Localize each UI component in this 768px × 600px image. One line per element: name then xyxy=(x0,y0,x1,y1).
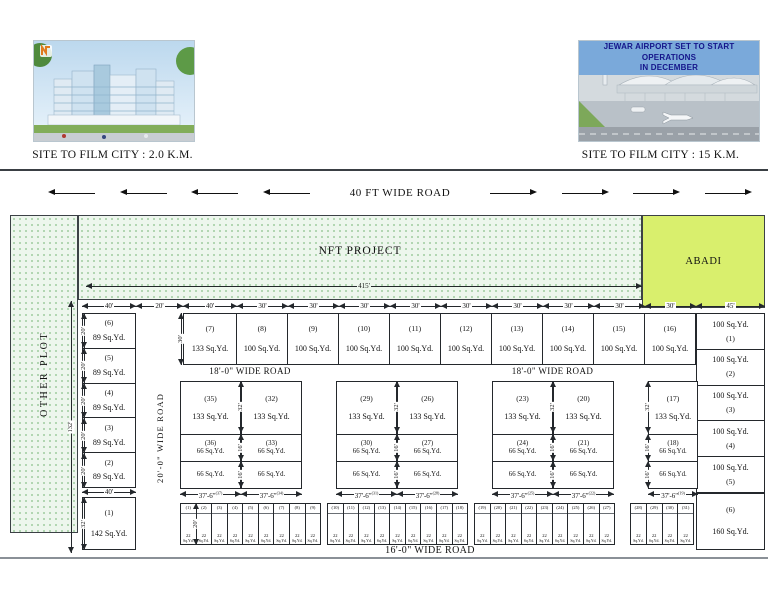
tiny-plot-area: 22Sq.Yd. xyxy=(214,533,225,543)
tiny-plot-number: (15) xyxy=(406,504,421,514)
plot-area: 89 Sq.Yd. xyxy=(93,438,125,447)
right-plot-column: 100 Sq.Yd.(1)100 Sq.Yd.(2)100 Sq.Yd.(3)1… xyxy=(696,313,765,493)
right-arrow-icon xyxy=(705,193,745,194)
dim-horizontal: 37'-6"(22) xyxy=(553,489,614,499)
tiny-plot-area: 22Sq.Yd. xyxy=(308,533,319,543)
plot-cell: (8)100 Sq.Yd. xyxy=(236,314,287,364)
tiny-area-unit: Sq.Yd. xyxy=(570,539,581,543)
tiny-plot: (20)22Sq.Yd. xyxy=(490,504,506,544)
dim-vertical: 32' xyxy=(643,381,653,433)
tiny-plot-area: 22Sq.Yd. xyxy=(330,533,341,543)
plot-number: (36) xyxy=(205,440,216,448)
dim-horizontal: 37'-6"(28) xyxy=(397,489,458,499)
plot-cell: (1)142 Sq.Yd. xyxy=(82,497,136,550)
plot-area: 100 Sq.Yd. xyxy=(712,427,748,436)
tiny-area-unit: Sq.Yd. xyxy=(423,539,434,543)
dim-text: 30' xyxy=(359,302,369,310)
tiny-plot-area: 22Sq.Yd. xyxy=(455,533,466,543)
dim-vertical: 30' xyxy=(176,313,186,365)
dim-text: 37'-6"(22) xyxy=(571,492,597,500)
dim-vertical: 32' xyxy=(548,381,558,433)
tiny-plot-area: 22Sq.Yd. xyxy=(602,533,613,543)
plot-number: (1) xyxy=(726,335,735,344)
dim-label: 30' xyxy=(543,301,594,311)
right-arrow-icon xyxy=(490,193,530,194)
tiny-plot: (10)22Sq.Yd. xyxy=(328,504,343,544)
dim-label: 37'-6"(19) xyxy=(648,489,698,501)
tiny-plot-area: 22Sq.Yd. xyxy=(292,533,303,543)
tiny-plot-number: (29) xyxy=(647,504,662,514)
plot-number: (23) xyxy=(516,395,529,404)
dim-label: 16' xyxy=(645,443,652,453)
film-city-card xyxy=(33,40,195,142)
plot-area: 66 Sq.Yd. xyxy=(509,448,536,456)
tiny-area-unit: Sq.Yd. xyxy=(346,539,357,543)
dim-vertical: 32' xyxy=(236,381,246,433)
plot-cell: (12)100 Sq.Yd. xyxy=(440,314,491,364)
dim-vertical: 20' xyxy=(79,418,89,453)
plot-number-superscript: (25) xyxy=(528,491,535,496)
plot-number: (2) xyxy=(726,370,735,379)
tiny-plot-number: (23) xyxy=(537,504,552,514)
tiny-area-unit: Sq.Yd. xyxy=(308,539,319,543)
plot-number: (13) xyxy=(511,325,524,334)
road-18ft-right-label: 18'-0" WIDE ROAD xyxy=(475,366,630,376)
tiny-area-unit: Sq.Yd. xyxy=(377,539,388,543)
tiny-area-unit: Sq.Yd. xyxy=(680,539,691,543)
tiny-area-unit: Sq.Yd. xyxy=(439,539,450,543)
dim-label: 16' xyxy=(550,443,557,453)
dim-label: 30' xyxy=(339,301,390,311)
tiny-plot-number: (18) xyxy=(453,504,468,514)
dim-horizontal: 30' xyxy=(441,301,492,311)
abadi-label: ABADI xyxy=(685,256,721,267)
plot-area: 160 Sq.Yd. xyxy=(712,527,748,536)
plot-number: (4) xyxy=(105,389,114,398)
block-column: (32)133 Sq.Yd.(33)66 Sq.Yd.66 Sq.Yd. xyxy=(241,381,302,489)
tiny-area-unit: Sq.Yd. xyxy=(392,539,403,543)
dim-label: 415' xyxy=(86,281,642,291)
dim-label: 20' xyxy=(81,361,88,371)
tiny-plot-area: 22Sq.Yd. xyxy=(245,533,256,543)
dim-label: 16' xyxy=(550,470,557,480)
dim-text: 40' xyxy=(104,302,114,310)
tiny-plot-number: (3) xyxy=(212,504,227,514)
tiny-plot-number: (20) xyxy=(491,504,506,514)
plot-cell: (17)133 Sq.Yd. xyxy=(649,382,697,434)
plot-number: (1) xyxy=(105,509,114,518)
tiny-plot: (28)22Sq.Yd. xyxy=(631,504,646,544)
tiny-plot: (7)22Sq.Yd. xyxy=(273,504,289,544)
plot-number: (10) xyxy=(358,325,371,334)
tiny-plot: (12)22Sq.Yd. xyxy=(358,504,374,544)
plot-cell: (3)89 Sq.Yd. xyxy=(83,417,135,452)
dim-label: 37'-6"(37) xyxy=(180,489,241,501)
tiny-area-unit: Sq.Yd. xyxy=(214,539,225,543)
dim-label: 30' xyxy=(237,301,288,311)
dim-label: 32' xyxy=(645,402,652,412)
dim-text: 30' xyxy=(614,302,624,310)
dim-vertical: 16' xyxy=(236,461,246,488)
tiny-plot-number: (8) xyxy=(290,504,305,514)
plot-number: (8) xyxy=(258,325,267,334)
tiny-area-unit: Sq.Yd. xyxy=(455,539,466,543)
plot-area: 133 Sq.Yd. xyxy=(348,412,384,421)
plot-area: 133 Sq.Yd. xyxy=(253,412,289,421)
plot-area: 66 Sq.Yd. xyxy=(659,471,686,479)
dim-label: 37'-6"(28) xyxy=(397,489,458,501)
tiny-plot-area: 22Sq.Yd. xyxy=(423,533,434,543)
plot-cell: 66 Sq.Yd. xyxy=(337,461,396,488)
dim-horizontal: 37'-6"(34) xyxy=(241,489,302,499)
tiny-area-unit: Sq.Yd. xyxy=(330,539,341,543)
tiny-plot-area: 22Sq.Yd. xyxy=(586,533,597,543)
plot-cell: 66 Sq.Yd. xyxy=(398,461,457,488)
dim-vertical: 16' xyxy=(548,434,558,461)
plot-cell: (33)66 Sq.Yd. xyxy=(242,434,301,461)
dim-label: 45' xyxy=(696,301,765,311)
tiny-plot-number: (30) xyxy=(663,504,678,514)
dim-label: 30' xyxy=(645,301,696,311)
plot-number: (4) xyxy=(726,442,735,451)
plot-number: (12) xyxy=(460,325,473,334)
plot-area: 100 Sq.Yd. xyxy=(499,344,535,353)
dim-horizontal: 20' xyxy=(136,301,183,311)
dim-label: 30' xyxy=(288,301,339,311)
tiny-plot-number: (27) xyxy=(600,504,615,514)
dim-label: 37'-6"(34) xyxy=(241,489,302,501)
dim-label: 20' xyxy=(81,396,88,406)
tiny-area-unit: Sq.Yd. xyxy=(230,539,241,543)
plot-number: (30) xyxy=(361,440,372,448)
dim-label: 30' xyxy=(178,334,185,344)
plot-area: 133 Sq.Yd. xyxy=(192,344,228,353)
dim-vertical: 16' xyxy=(236,434,246,461)
nft-project-label: NFT PROJECT xyxy=(319,245,402,257)
block-column: (20)133 Sq.Yd.(21)66 Sq.Yd.66 Sq.Yd. xyxy=(553,381,614,489)
plot-area: 66 Sq.Yd. xyxy=(258,471,285,479)
plot-number: (3) xyxy=(726,406,735,415)
plot-area: 66 Sq.Yd. xyxy=(258,448,285,456)
plot-cell: (5)89 Sq.Yd. xyxy=(83,348,135,383)
dim-label: 30' xyxy=(390,301,441,311)
plot-area: 89 Sq.Yd. xyxy=(93,333,125,342)
plot-number: (24) xyxy=(517,440,528,448)
tiny-plot: (24)22Sq.Yd. xyxy=(552,504,568,544)
plot-cell: (4)89 Sq.Yd. xyxy=(83,383,135,418)
plot-number: (33) xyxy=(266,440,277,448)
tiny-plot: (23)22Sq.Yd. xyxy=(536,504,552,544)
plot-cell: (7)133 Sq.Yd. xyxy=(184,314,236,364)
tiny-plot-area: 22Sq.Yd. xyxy=(539,533,550,543)
dim-label: 30' xyxy=(594,301,645,311)
plot-cell: 100 Sq.Yd.(4) xyxy=(697,420,764,456)
plot-cell: (11)100 Sq.Yd. xyxy=(389,314,440,364)
dim-vertical: 16' xyxy=(392,434,402,461)
dim-horizontal: 40' xyxy=(82,301,136,311)
left-arrow-icon xyxy=(55,193,95,194)
tiny-plot: (16)22Sq.Yd. xyxy=(420,504,436,544)
plot-number-superscript: (34) xyxy=(277,491,284,496)
plot-number: (32) xyxy=(265,395,278,404)
tiny-plot-number: (19) xyxy=(475,504,490,514)
dim-text: 20' xyxy=(154,302,164,310)
dim-horizontal: 37'-6"(31) xyxy=(336,489,397,499)
dim-vertical: 16' xyxy=(643,434,653,461)
tiny-plot-area: 22Sq.Yd. xyxy=(680,533,691,543)
airport-banner: JEWAR AIRPORT SET TO START OPERATIONS IN… xyxy=(579,41,759,75)
dim-label: 16' xyxy=(238,443,245,453)
dim-label: 20' xyxy=(81,431,88,441)
tiny-plot-area: 22Sq.Yd. xyxy=(346,533,357,543)
tiny-area-unit: Sq.Yd. xyxy=(539,539,550,543)
plot-cell: (35)133 Sq.Yd. xyxy=(181,382,240,434)
plot-area: 142 Sq.Yd. xyxy=(91,529,127,538)
tiny-plot-area: 22Sq.Yd. xyxy=(361,533,372,543)
dim-text: 30' xyxy=(512,302,522,310)
dim-vertical: 32' xyxy=(392,381,402,433)
plot-area: 100 Sq.Yd. xyxy=(346,344,382,353)
dim-label: 20' xyxy=(136,301,183,311)
dim-horizontal: 37'-6"(37) xyxy=(180,489,241,499)
dim-label: 40' xyxy=(82,487,136,497)
plot-area: 89 Sq.Yd. xyxy=(93,472,125,481)
plot-area: 66 Sq.Yd. xyxy=(353,448,380,456)
tiny-plot-number: (21) xyxy=(506,504,521,514)
plot-cell: (23)133 Sq.Yd. xyxy=(493,382,552,434)
tiny-plot-area: 22Sq.Yd. xyxy=(649,533,660,543)
tiny-plot: (26)22Sq.Yd. xyxy=(583,504,599,544)
tiny-plot: (14)22Sq.Yd. xyxy=(389,504,405,544)
tiny-plot-area: 22Sq.Yd. xyxy=(633,533,644,543)
dim-label: 16' xyxy=(394,443,401,453)
dim-text: 37'-6"(37) xyxy=(198,492,224,500)
plot-cell: 66 Sq.Yd. xyxy=(649,461,697,488)
dim-label: 37'-6"(25) xyxy=(492,489,553,501)
plot-number: (6) xyxy=(726,506,735,515)
tiny-plot-group: (19)22Sq.Yd.(20)22Sq.Yd.(21)22Sq.Yd.(22)… xyxy=(474,503,615,545)
site-plan-brochure-page: SITE TO FILM CITY : 2.0 K.M. JEWAR AIRPO… xyxy=(0,0,768,600)
tiny-plot-area: 22Sq.Yd. xyxy=(276,533,287,543)
plot-number: (26) xyxy=(421,395,434,404)
dim-horizontal: 30' xyxy=(543,301,594,311)
dim-text: 30' xyxy=(257,302,267,310)
dim-label: 16' xyxy=(394,470,401,480)
tiny-plot-group: (28)22Sq.Yd.(29)22Sq.Yd.(30)22Sq.Yd.(31)… xyxy=(630,503,694,545)
plot-area: 133 Sq.Yd. xyxy=(409,412,445,421)
dim-horizontal: 40' xyxy=(183,301,237,311)
plot-cell: (30)66 Sq.Yd. xyxy=(337,434,396,461)
block-column: (26)133 Sq.Yd.(27)66 Sq.Yd.66 Sq.Yd. xyxy=(397,381,458,489)
plot-area: 66 Sq.Yd. xyxy=(414,448,441,456)
plot-cell: (24)66 Sq.Yd. xyxy=(493,434,552,461)
dim-label: 16' xyxy=(238,470,245,480)
plot-area: 66 Sq.Yd. xyxy=(570,448,597,456)
tiny-plot-number: (16) xyxy=(421,504,436,514)
tiny-area-unit: Sq.Yd. xyxy=(524,539,535,543)
dim-text: 30' xyxy=(410,302,420,310)
tiny-area-unit: Sq.Yd. xyxy=(602,539,613,543)
plot-area: 100 Sq.Yd. xyxy=(652,344,688,353)
abadi-area: ABADI xyxy=(642,215,765,308)
plot-cell: (26)133 Sq.Yd. xyxy=(398,382,457,434)
tiny-plot-number: (13) xyxy=(375,504,390,514)
tiny-plot-number: (4) xyxy=(228,504,243,514)
plot-area: 89 Sq.Yd. xyxy=(93,368,125,377)
plot-area: 133 Sq.Yd. xyxy=(655,412,691,421)
tiny-plot: (27)22Sq.Yd. xyxy=(599,504,615,544)
plot-cell: 100 Sq.Yd.(3) xyxy=(697,385,764,421)
dim-text: 37'-6"(31) xyxy=(354,492,380,500)
tiny-plot-area: 22Sq.Yd. xyxy=(377,533,388,543)
dim-vertical: 20' xyxy=(79,313,89,348)
plot-area: 66 Sq.Yd. xyxy=(353,471,380,479)
tiny-plot-number: (7) xyxy=(274,504,289,514)
plot-number-superscript: (37) xyxy=(216,491,223,496)
plot-area: 100 Sq.Yd. xyxy=(712,391,748,400)
plot-area: 66 Sq.Yd. xyxy=(197,448,224,456)
plot-number: (16) xyxy=(664,325,677,334)
left-arrow-icon xyxy=(270,193,310,194)
tiny-area-unit: Sq.Yd. xyxy=(245,539,256,543)
dim-text: 40' xyxy=(104,488,114,496)
right-arrow-icon xyxy=(562,193,602,194)
site-plan-drawing: OTHER PLOT NFT PROJECT ABADI 18'-0" WIDE… xyxy=(0,215,768,565)
left-arrow-icon xyxy=(127,193,167,194)
plot-number: (20) xyxy=(577,395,590,404)
dim-label: 32' xyxy=(238,402,245,412)
tiny-area-unit: Sq.Yd. xyxy=(508,539,519,543)
plot-area: 100 Sq.Yd. xyxy=(712,355,748,364)
dim-vertical: 20' xyxy=(79,383,89,418)
plot-area: 133 Sq.Yd. xyxy=(192,412,228,421)
tiny-plot-number: (11) xyxy=(344,504,359,514)
tiny-plot: (3)22Sq.Yd. xyxy=(211,504,227,544)
tiny-plot: (25)22Sq.Yd. xyxy=(567,504,583,544)
tiny-plot-number: (17) xyxy=(437,504,452,514)
plot-cell: (15)100 Sq.Yd. xyxy=(593,314,644,364)
dim-horizontal: 40' xyxy=(82,487,136,497)
plot-number: (14) xyxy=(562,325,575,334)
plot-cell: (21)66 Sq.Yd. xyxy=(554,434,613,461)
plot-cell: (9)100 Sq.Yd. xyxy=(287,314,338,364)
plot-area: 89 Sq.Yd. xyxy=(93,403,125,412)
other-plot-label: OTHER PLOT xyxy=(39,331,50,417)
plot-cell: (6)89 Sq.Yd. xyxy=(83,314,135,348)
dim-vertical: 20' xyxy=(79,348,89,383)
tiny-plot: (4)22Sq.Yd. xyxy=(227,504,243,544)
dim-text: 30' xyxy=(308,302,318,310)
tiny-plot-number: (31) xyxy=(678,504,693,514)
plot-cell: 66 Sq.Yd. xyxy=(242,461,301,488)
plot-number: (11) xyxy=(409,325,421,334)
tiny-area-unit: Sq.Yd. xyxy=(292,539,303,543)
tiny-plot-area: 22Sq.Yd. xyxy=(493,533,504,543)
dim-label: 132' xyxy=(68,421,75,434)
tiny-plot-area: 22Sq.Yd. xyxy=(570,533,581,543)
road-16ft-label: 16'-0" WIDE ROAD xyxy=(320,545,540,556)
plot-number: (7) xyxy=(206,325,215,334)
plot-cell: (29)133 Sq.Yd. xyxy=(337,382,396,434)
tiny-plot: (6)22Sq.Yd. xyxy=(258,504,274,544)
plot-cell: (16)100 Sq.Yd. xyxy=(644,314,695,364)
plot-number: (35) xyxy=(204,395,217,404)
block-column: (29)133 Sq.Yd.(30)66 Sq.Yd.66 Sq.Yd. xyxy=(336,381,397,489)
dim-text: 30' xyxy=(461,302,471,310)
plot-number: (5) xyxy=(105,354,114,363)
tiny-plot-group: (10)22Sq.Yd.(11)22Sq.Yd.(12)22Sq.Yd.(13)… xyxy=(327,503,468,545)
top-plot-row: (7)133 Sq.Yd.(8)100 Sq.Yd.(9)100 Sq.Yd.(… xyxy=(183,313,696,365)
dim-horizontal: 30' xyxy=(390,301,441,311)
dim-vertical: 20' xyxy=(191,503,201,545)
dim-vertical: 16' xyxy=(548,461,558,488)
plot-number: (6) xyxy=(105,319,114,328)
plot-area: 66 Sq.Yd. xyxy=(570,471,597,479)
tiny-area-unit: Sq.Yd. xyxy=(665,539,676,543)
tiny-plot: (29)22Sq.Yd. xyxy=(646,504,662,544)
tiny-area-unit: Sq.Yd. xyxy=(586,539,597,543)
tiny-plot: (13)22Sq.Yd. xyxy=(374,504,390,544)
tiny-plot-number: (10) xyxy=(328,504,343,514)
tiny-plot: (30)22Sq.Yd. xyxy=(662,504,678,544)
dim-vertical: 132' xyxy=(66,301,76,553)
plot-cell: (20)133 Sq.Yd. xyxy=(554,382,613,434)
dim-text: 37'-6"(28) xyxy=(415,492,441,500)
tiny-plot: (8)22Sq.Yd. xyxy=(289,504,305,544)
tiny-plot-group: (1)22Sq.Yd.(2)22Sq.Yd.(3)22Sq.Yd.(4)22Sq… xyxy=(180,503,321,545)
tiny-plot: (22)22Sq.Yd. xyxy=(521,504,537,544)
tiny-plot-area: 22Sq.Yd. xyxy=(555,533,566,543)
tiny-plot: (17)22Sq.Yd. xyxy=(436,504,452,544)
tiny-plot: (9)22Sq.Yd. xyxy=(305,504,321,544)
tiny-plot: (31)22Sq.Yd. xyxy=(677,504,693,544)
plot-number: (15) xyxy=(613,325,626,334)
plot-cell: 100 Sq.Yd.(2) xyxy=(697,349,764,385)
dim-text: 30' xyxy=(665,302,675,310)
plot-number: (5) xyxy=(726,478,735,487)
dim-horizontal: 415' xyxy=(86,281,642,291)
dim-label: 37'-6"(22) xyxy=(553,489,614,501)
airport-banner-line1: JEWAR AIRPORT SET TO START OPERATIONS xyxy=(579,42,759,64)
plot-cell: 66 Sq.Yd. xyxy=(493,461,552,488)
tiny-plot-area: 22Sq.Yd. xyxy=(230,533,241,543)
airport-caption: SITE TO FILM CITY : 15 K.M. xyxy=(553,149,768,161)
plot-number: (2) xyxy=(105,459,114,468)
plot-area: 100 Sq.Yd. xyxy=(550,344,586,353)
dim-horizontal: 30' xyxy=(339,301,390,311)
tiny-area-unit: Sq.Yd. xyxy=(649,539,660,543)
plot-cell: (18)66 Sq.Yd. xyxy=(649,434,697,461)
right-arrow-icon xyxy=(633,193,673,194)
dim-label: 37'-6"(31) xyxy=(336,489,397,501)
tiny-plot-number: (28) xyxy=(631,504,646,514)
dim-vertical: 32' xyxy=(79,497,89,550)
dim-label: 20' xyxy=(193,519,200,529)
top-road-label: 40 FT WIDE ROAD xyxy=(342,187,459,199)
dim-label: 32' xyxy=(394,402,401,412)
dim-vertical: 16' xyxy=(643,461,653,488)
plot-cell: (36)66 Sq.Yd. xyxy=(181,434,240,461)
plot-cell: (14)100 Sq.Yd. xyxy=(542,314,593,364)
tiny-plot: (11)22Sq.Yd. xyxy=(343,504,359,544)
tiny-plot-number: (25) xyxy=(568,504,583,514)
plot-number: (3) xyxy=(105,424,114,433)
plot-area: 100 Sq.Yd. xyxy=(397,344,433,353)
plot-cell: (32)133 Sq.Yd. xyxy=(242,382,301,434)
plot-area: 100 Sq.Yd. xyxy=(448,344,484,353)
tiny-plot-number: (9) xyxy=(306,504,321,514)
plot-area: 133 Sq.Yd. xyxy=(504,412,540,421)
